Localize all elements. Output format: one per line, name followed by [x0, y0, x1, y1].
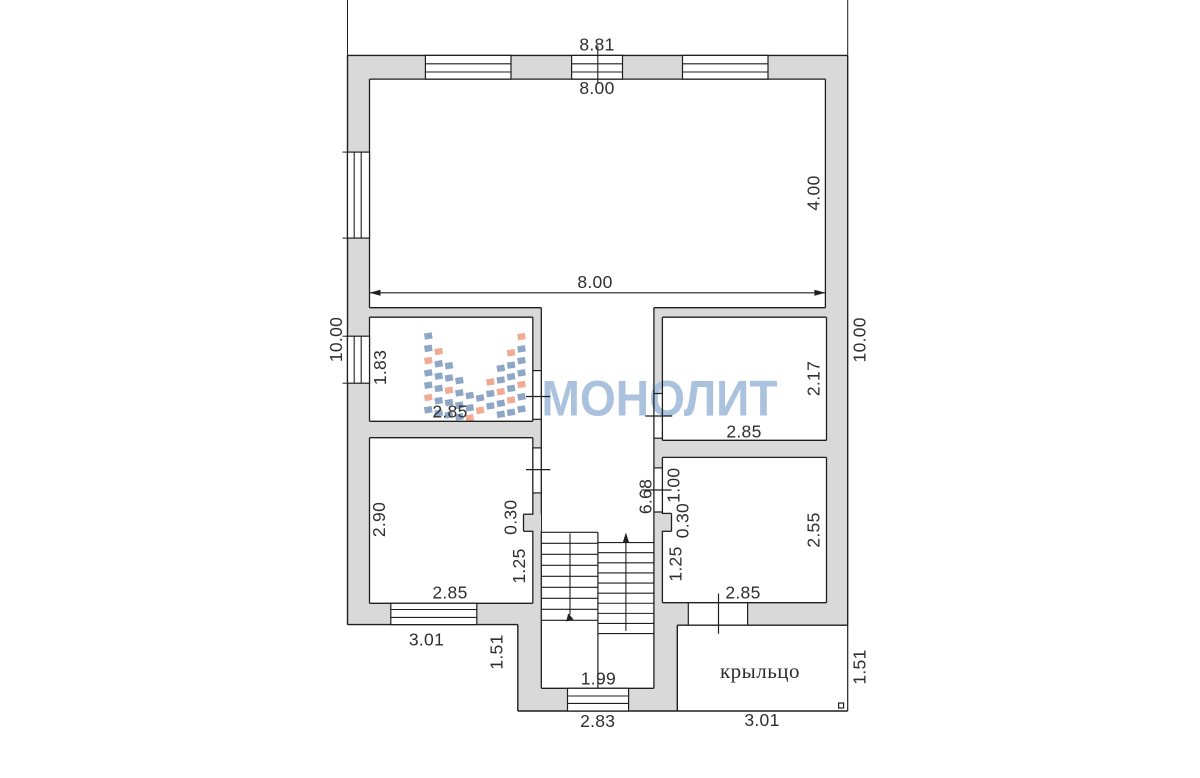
svg-text:2.85: 2.85 — [432, 401, 467, 421]
svg-text:1.00: 1.00 — [663, 468, 683, 503]
svg-text:1.51: 1.51 — [849, 649, 869, 684]
svg-text:2.85: 2.85 — [432, 582, 467, 602]
svg-text:крыльцо: крыльцо — [720, 659, 800, 683]
svg-text:0.30: 0.30 — [672, 503, 692, 538]
svg-text:4.00: 4.00 — [803, 175, 823, 210]
svg-text:2.85: 2.85 — [726, 421, 761, 441]
svg-text:3.01: 3.01 — [744, 710, 779, 730]
svg-text:МОНОЛИТ: МОНОЛИТ — [542, 371, 778, 427]
svg-text:8.81: 8.81 — [579, 35, 614, 55]
svg-text:1.25: 1.25 — [666, 546, 686, 581]
svg-text:10.00: 10.00 — [849, 317, 869, 362]
svg-text:8.00: 8.00 — [577, 272, 612, 292]
svg-text:0.30: 0.30 — [500, 500, 520, 535]
svg-text:6.68: 6.68 — [635, 479, 655, 514]
svg-text:2.55: 2.55 — [804, 512, 824, 547]
svg-text:2.83: 2.83 — [580, 711, 615, 731]
svg-text:2.85: 2.85 — [725, 582, 760, 602]
svg-text:1.83: 1.83 — [370, 350, 390, 385]
svg-text:8.00: 8.00 — [579, 78, 614, 98]
svg-text:2.90: 2.90 — [369, 502, 389, 537]
svg-text:1.51: 1.51 — [486, 634, 506, 669]
svg-text:1.25: 1.25 — [509, 548, 529, 583]
svg-text:2.17: 2.17 — [804, 361, 824, 396]
svg-text:10.00: 10.00 — [326, 317, 346, 362]
svg-text:1.99: 1.99 — [581, 668, 616, 688]
svg-text:3.01: 3.01 — [409, 630, 444, 650]
